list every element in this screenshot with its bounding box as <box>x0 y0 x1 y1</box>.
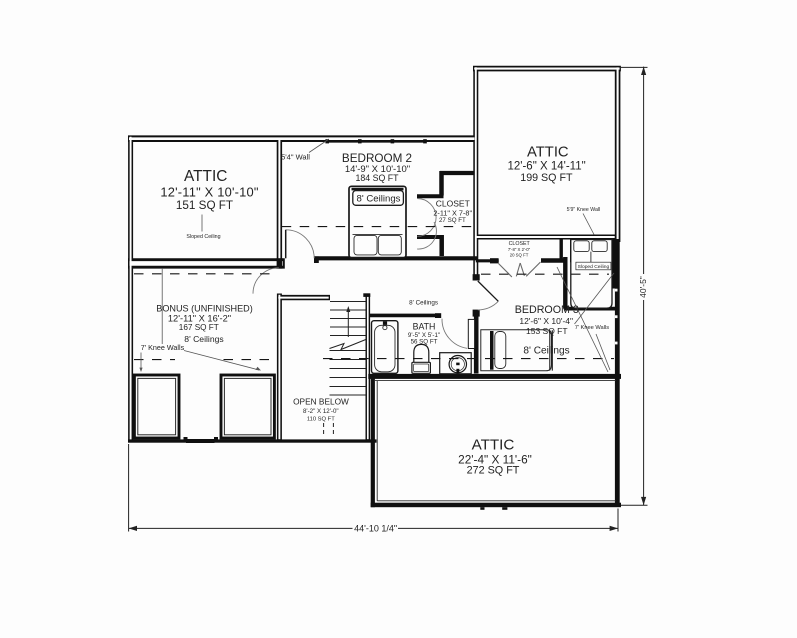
svg-text:ATTIC: ATTIC <box>184 168 227 185</box>
svg-text:BEDROOM 3: BEDROOM 3 <box>515 304 579 316</box>
svg-text:8' Ceilings: 8' Ceilings <box>523 345 569 356</box>
svg-text:ATTIC: ATTIC <box>472 437 515 454</box>
svg-text:OPEN BELOW: OPEN BELOW <box>293 397 349 407</box>
svg-text:8' Ceilings: 8' Ceilings <box>409 300 438 307</box>
svg-text:8'-2" X 12'-0": 8'-2" X 12'-0" <box>303 408 339 415</box>
svg-text:5'9" Knee Wall: 5'9" Knee Wall <box>567 207 601 213</box>
svg-text:BONUS (UNFINISHED): BONUS (UNFINISHED) <box>156 304 253 314</box>
svg-text:12'-6" X 14'-11": 12'-6" X 14'-11" <box>507 161 585 173</box>
svg-text:ATTIC: ATTIC <box>527 145 569 161</box>
svg-text:8' Ceilings: 8' Ceilings <box>357 193 401 204</box>
svg-text:BATH: BATH <box>413 322 436 332</box>
svg-text:199 SQ FT: 199 SQ FT <box>520 172 573 184</box>
svg-text:56 SQ FT: 56 SQ FT <box>411 339 438 346</box>
svg-text:272 SQ FT: 272 SQ FT <box>467 465 520 477</box>
svg-text:12'-11" X 16'-2": 12'-11" X 16'-2" <box>168 314 231 324</box>
svg-text:184 SQ FT: 184 SQ FT <box>355 173 399 183</box>
svg-text:CLOSET: CLOSET <box>436 198 470 208</box>
svg-text:7' Knee Walls: 7' Knee Walls <box>575 325 610 331</box>
svg-text:12'-6" X 10'-4": 12'-6" X 10'-4" <box>519 316 573 326</box>
svg-text:167 SQ FT: 167 SQ FT <box>179 323 219 332</box>
svg-text:5'4" Wall: 5'4" Wall <box>281 153 310 162</box>
svg-text:153 SQ FT: 153 SQ FT <box>526 326 568 336</box>
svg-text:7'-8" X 2'-0": 7'-8" X 2'-0" <box>508 247 531 252</box>
svg-text:44'-10 1/4": 44'-10 1/4" <box>354 523 397 533</box>
svg-text:20 SQ FT: 20 SQ FT <box>510 253 529 258</box>
svg-text:110 SQ FT: 110 SQ FT <box>307 416 335 422</box>
svg-text:12'-11" X 10'-10": 12'-11" X 10'-10" <box>160 185 258 200</box>
svg-text:7' Knee Walls: 7' Knee Walls <box>141 343 185 352</box>
svg-text:8' Ceilings: 8' Ceilings <box>184 334 223 344</box>
svg-text:151 SQ FT: 151 SQ FT <box>176 199 233 212</box>
svg-text:Sloped Ceiling: Sloped Ceiling <box>578 264 610 270</box>
svg-text:40'-5": 40'-5" <box>638 276 648 298</box>
svg-text:27 SQ FT: 27 SQ FT <box>439 217 466 224</box>
svg-text:Sloped Ceiling: Sloped Ceiling <box>186 234 220 240</box>
